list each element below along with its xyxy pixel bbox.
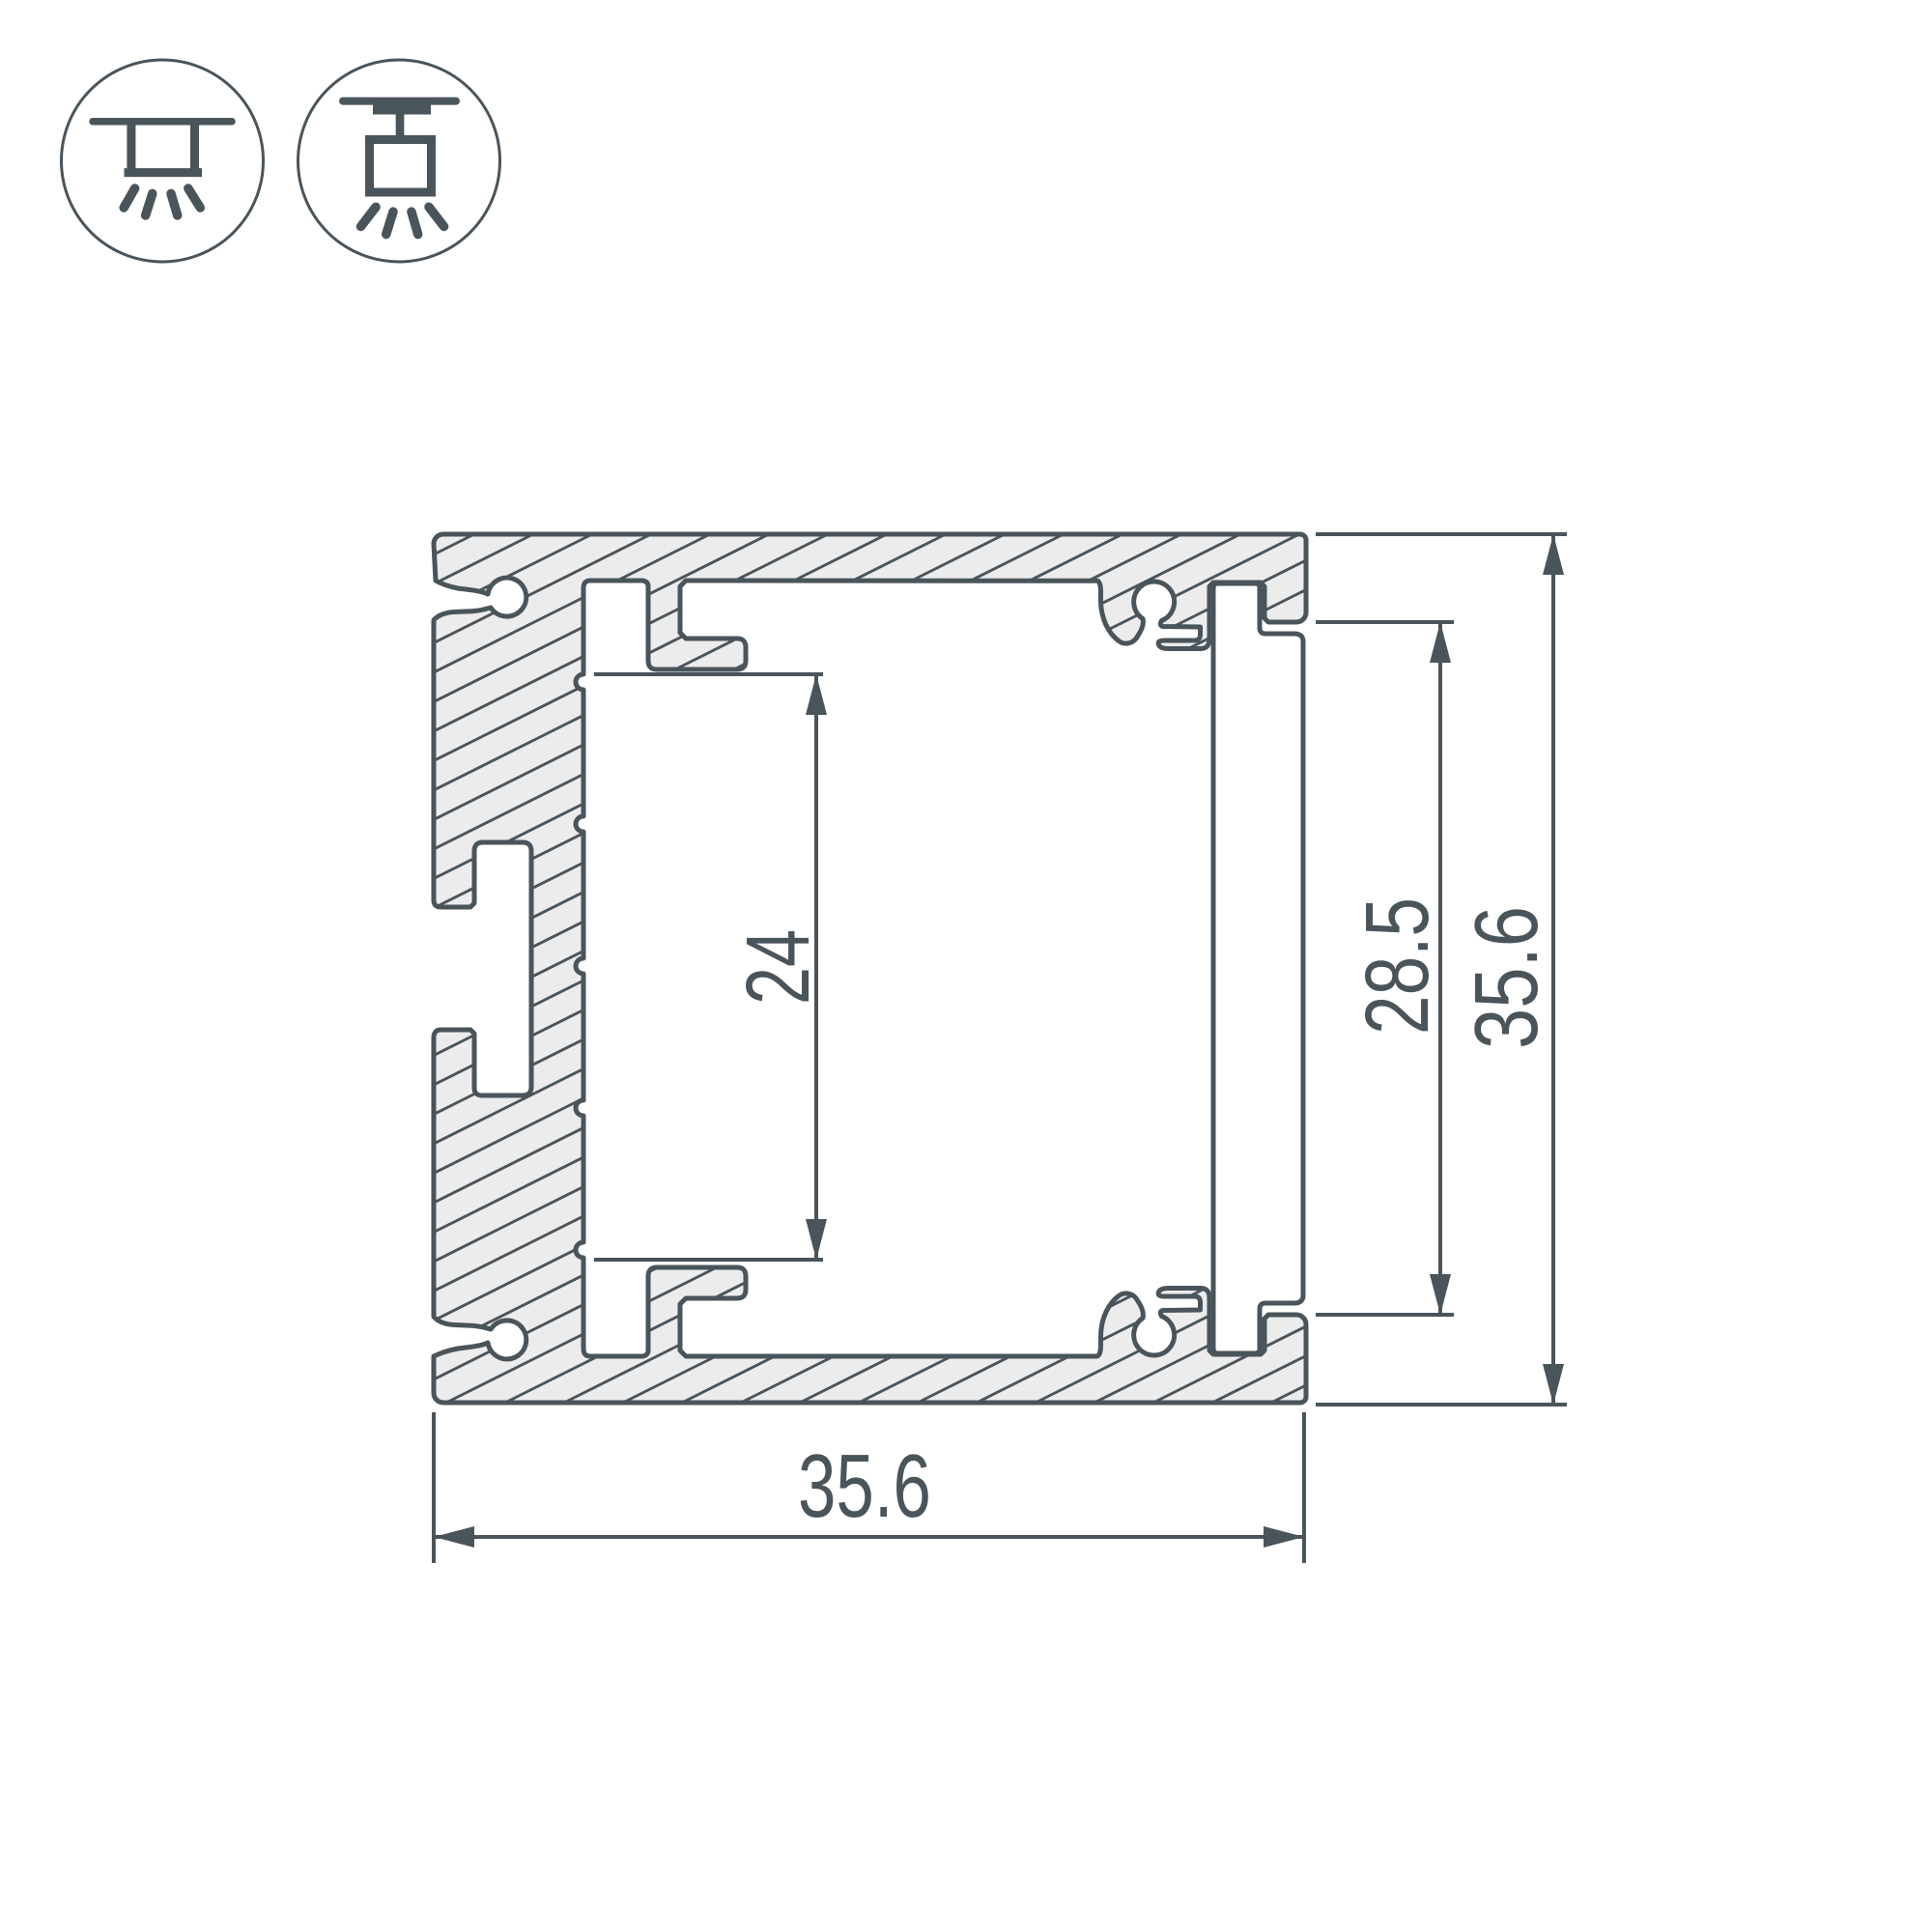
svg-text:28.5: 28.5 bbox=[1347, 897, 1447, 1035]
svg-text:24: 24 bbox=[727, 929, 828, 1005]
svg-text:35.6: 35.6 bbox=[798, 1435, 931, 1536]
svg-text:35.6: 35.6 bbox=[1456, 906, 1556, 1049]
